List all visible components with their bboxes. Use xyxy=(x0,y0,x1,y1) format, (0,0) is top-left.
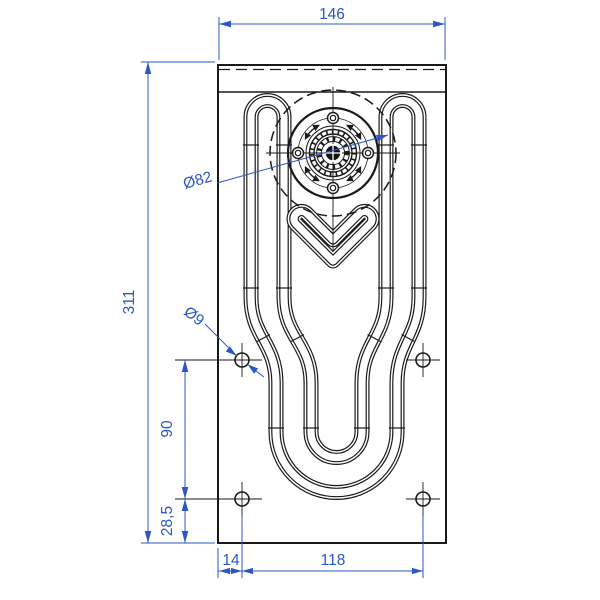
dim-flange-diameter: Ø82 xyxy=(181,168,214,192)
dim-bottom-offset: 28,5 xyxy=(159,506,176,536)
dim-top-width: 146 xyxy=(319,6,345,23)
dim-hole-diameter: Ø9 xyxy=(180,303,207,329)
dim-left-offset: 14 xyxy=(222,552,240,569)
dim-left-height: 311 xyxy=(121,290,138,315)
dim-hole-pitch-horizontal: 118 xyxy=(321,552,346,569)
bearing-hub xyxy=(306,126,360,180)
technical-drawing-canvas: 146 311 Ø82 Ø9 90 28,5 14 118 xyxy=(0,0,600,600)
technical-drawing: 146 311 Ø82 Ø9 90 28,5 14 118 xyxy=(0,0,600,600)
dim-hole-pitch-vertical: 90 xyxy=(159,420,176,438)
